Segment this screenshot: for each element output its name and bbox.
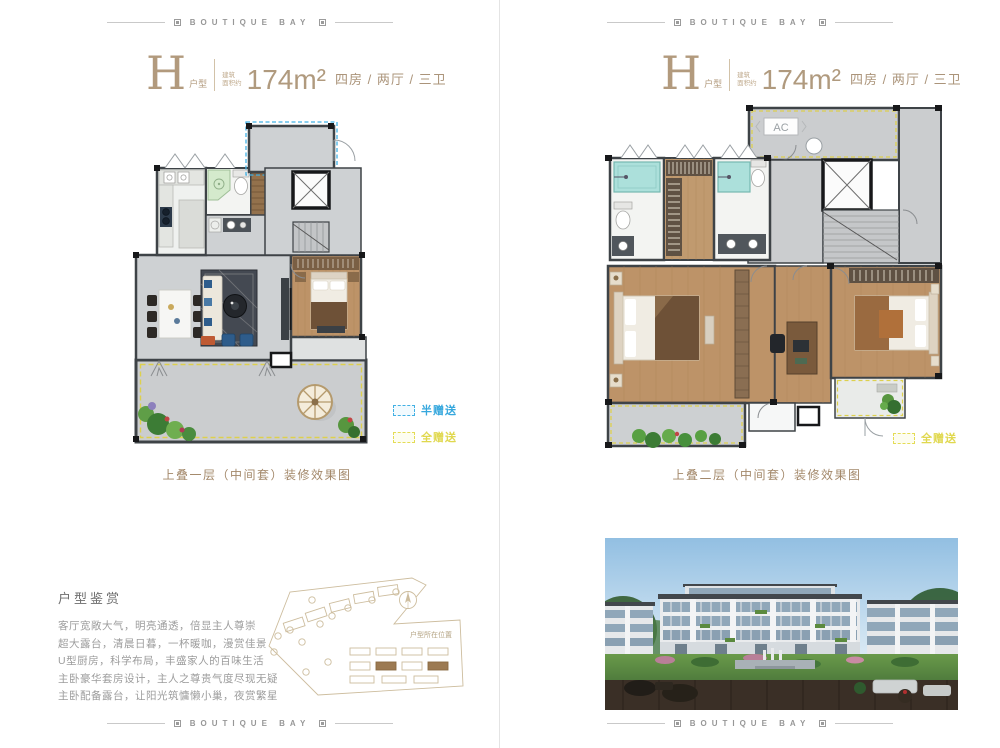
room-config: 四房 / 两厅 / 三卫 (850, 69, 962, 88)
legend-level1: 半赠送 全赠送 (393, 402, 457, 445)
floorplan-level2: AC (581, 102, 953, 458)
rule-line (107, 723, 165, 724)
siteplan-sketch: 户型所在位置 (262, 572, 467, 704)
brand-name: BOUTIQUE BAY (190, 719, 311, 728)
rule-line (335, 723, 393, 724)
legend-item-full-gift: 全赠送 (893, 430, 957, 446)
ornament-square-icon (174, 19, 181, 26)
floorplan-level1 (119, 112, 395, 460)
appreciation-line: U型厨房，科学布局，丰盛家人的百味生活 (58, 653, 278, 671)
bedroom (291, 255, 361, 337)
full-gift-label: 全赠送 (921, 430, 957, 446)
legend-level2: 全赠送 (893, 430, 957, 446)
rule-line (607, 22, 665, 23)
ornament-square-icon (674, 720, 681, 727)
appreciation-heading: 户型鉴赏 (58, 588, 278, 607)
brand-name: BOUTIQUE BAY (690, 18, 811, 27)
ornament-square-icon (319, 19, 326, 26)
appreciation-line: 客厅宽敞大气，明亮通透，倍显主人尊崇 (58, 618, 278, 636)
foreground-deck (605, 680, 958, 710)
small-terrace (291, 337, 366, 360)
page-level2: BOUTIQUE BAY H 户型 建筑 面积约 174m² 四房 / 两厅 /… (500, 0, 1000, 748)
rule-line (835, 723, 893, 724)
appreciation-line: 主卧配备露台，让阳光筑慵懒小巢，夜赏繁星 (58, 688, 278, 706)
plan-caption-level2: 上叠二层（中间套）装修效果图 (581, 466, 953, 483)
ac-platform: AC (749, 108, 899, 160)
side-hall (899, 108, 941, 263)
area-prefix: 建筑 面积约 (737, 73, 757, 88)
appreciation-line: 主卧豪华套房设计，主人之尊贵气度尽现无疑 (58, 671, 278, 689)
area-value: 174m² (762, 69, 841, 92)
bathroom-2 (714, 158, 770, 260)
bay-windows (165, 154, 235, 168)
appreciation-line: 超大露台，清晨日暮，一杯暖咖，漫赏佳景 (58, 636, 278, 654)
brand-footer: BOUTIQUE BAY (500, 719, 1000, 728)
master-bedroom (608, 266, 775, 403)
entry-hall (246, 122, 355, 175)
rule-line (335, 22, 393, 23)
brochure-sheet: BOUTIQUE BAY H 户型 建筑 面积约 174m² 四房 / 两厅 /… (0, 0, 1000, 748)
unit-letter: H (661, 56, 701, 92)
room-config: 四房 / 两厅 / 三卫 (335, 69, 447, 88)
brand-name: BOUTIQUE BAY (190, 18, 311, 27)
legend-item-half-gift: 半赠送 (393, 402, 457, 418)
brand-header: BOUTIQUE BAY (500, 18, 1000, 27)
main-building (658, 584, 862, 661)
elevator-stairs (265, 168, 361, 255)
appreciation-block: 户型鉴赏 客厅宽敞大气，明亮通透，倍显主人尊崇 超大露台，清晨日暮，一杯暖咖，漫… (58, 588, 278, 706)
building-photo (605, 538, 958, 710)
siteplan-label: 户型所在位置 (410, 630, 452, 639)
unit-title: H 户型 建筑 面积约 174m² 四房 / 两厅 / 三卫 (661, 56, 962, 92)
ornament-square-icon (819, 19, 826, 26)
ornament-square-icon (319, 720, 326, 727)
study (770, 266, 831, 403)
rule-line (607, 723, 665, 724)
full-gift-swatch (893, 433, 915, 444)
unit-type-label: 户型 (704, 77, 722, 90)
page-level1: BOUTIQUE BAY H 户型 建筑 面积约 174m² 四房 / 两厅 /… (0, 0, 500, 748)
brand-footer: BOUTIQUE BAY (0, 719, 500, 728)
brand-header: BOUTIQUE BAY (0, 18, 500, 27)
bathroom (206, 168, 251, 215)
title-divider (214, 59, 215, 91)
walkin-closet (664, 158, 714, 260)
balcony-left (608, 403, 745, 448)
bay-windows (621, 145, 757, 158)
unit-title: H 户型 建筑 面积约 174m² 四房 / 两厅 / 三卫 (146, 56, 447, 92)
rule-line (107, 22, 165, 23)
balcony-right (835, 378, 905, 436)
half-gift-label: 半赠送 (421, 402, 457, 418)
rear-landing (749, 403, 819, 431)
half-gift-swatch (393, 405, 415, 416)
unit-type-label: 户型 (189, 77, 207, 90)
brand-name: BOUTIQUE BAY (690, 719, 811, 728)
area-prefix: 建筑 面积约 (222, 73, 242, 88)
bathroom-1 (610, 158, 664, 260)
ornament-square-icon (674, 19, 681, 26)
ac-label: AC (773, 122, 788, 134)
rule-line (835, 22, 893, 23)
unit-letter: H (146, 56, 186, 92)
ornament-square-icon (819, 720, 826, 727)
kitchen (157, 168, 206, 255)
elevator-stairs (823, 160, 899, 263)
plan-caption-level1: 上叠一层（中间套）装修效果图 (119, 466, 395, 483)
ornament-square-icon (174, 720, 181, 727)
dining-set (147, 290, 203, 338)
legend-item-full-gift: 全赠送 (393, 429, 457, 445)
area-value: 174m² (247, 69, 326, 92)
full-gift-swatch (393, 432, 415, 443)
title-divider (729, 59, 730, 91)
bedroom-2 (831, 266, 941, 378)
full-gift-label: 全赠送 (421, 429, 457, 445)
